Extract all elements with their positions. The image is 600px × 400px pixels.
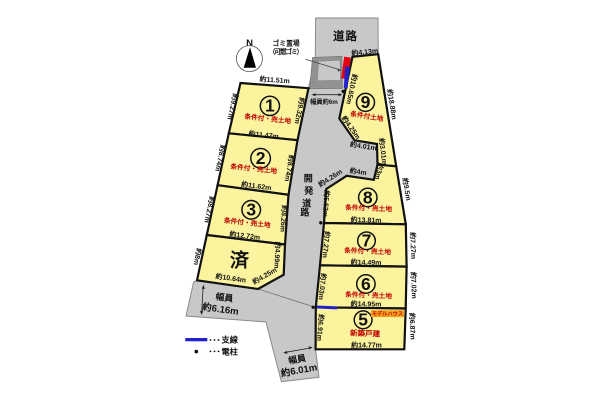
svg-text:開: 開 bbox=[304, 173, 313, 183]
svg-text:発: 発 bbox=[303, 185, 314, 196]
svg-text:路: 路 bbox=[300, 206, 310, 217]
svg-text:モデルハウス: モデルハウス bbox=[372, 310, 403, 318]
svg-text:幅員約6m: 幅員約6m bbox=[310, 98, 338, 106]
svg-text:2: 2 bbox=[256, 148, 266, 168]
svg-text:N: N bbox=[246, 38, 253, 49]
svg-text:ゴミ置場: ゴミ置場 bbox=[273, 38, 300, 47]
svg-text:8: 8 bbox=[363, 187, 373, 207]
svg-text:道路: 道路 bbox=[333, 29, 358, 43]
svg-text:支線: 支線 bbox=[221, 335, 239, 345]
svg-text:約14.77m: 約14.77m bbox=[351, 341, 382, 350]
svg-text:（可燃ゴミ）: （可燃ゴミ） bbox=[269, 47, 303, 56]
svg-text:6: 6 bbox=[361, 274, 371, 294]
svg-text:5: 5 bbox=[358, 310, 368, 330]
svg-text:3: 3 bbox=[246, 200, 256, 220]
svg-text:電柱: 電柱 bbox=[222, 347, 239, 357]
svg-text:1: 1 bbox=[265, 96, 275, 116]
svg-text:9: 9 bbox=[361, 92, 371, 112]
svg-text:新築戸建: 新築戸建 bbox=[350, 327, 381, 338]
svg-text:済: 済 bbox=[230, 249, 250, 272]
